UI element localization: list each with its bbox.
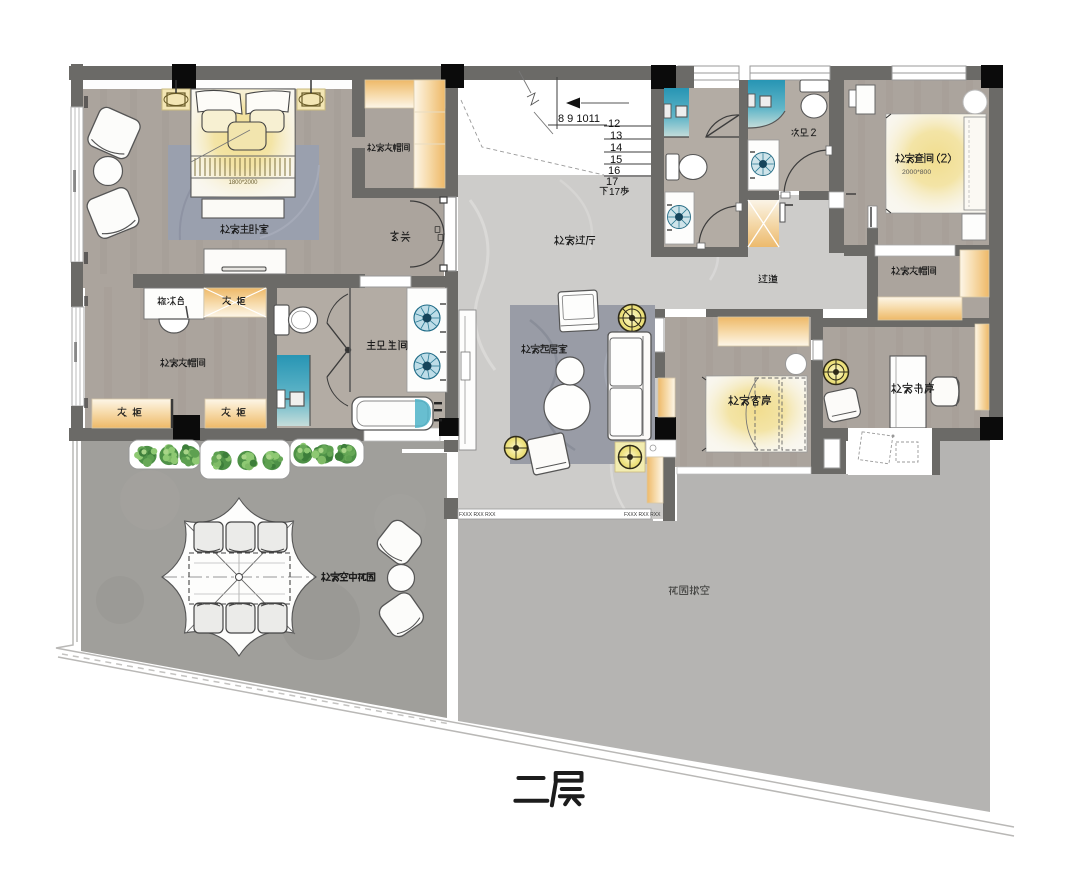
svg-text:1800*2000: 1800*2000	[228, 180, 258, 186]
svg-text:8 9 1011: 8 9 1011	[558, 113, 600, 125]
svg-text:13: 13	[610, 130, 622, 142]
svg-text:14: 14	[610, 142, 622, 154]
svg-text:2000*800: 2000*800	[902, 169, 931, 176]
svg-text:FXXX RXX RXX: FXXX RXX RXX	[624, 512, 661, 518]
svg-text:17: 17	[609, 187, 621, 198]
svg-text:FXXX RXX RXX: FXXX RXX RXX	[459, 512, 496, 518]
svg-text:12: 12	[608, 118, 620, 130]
